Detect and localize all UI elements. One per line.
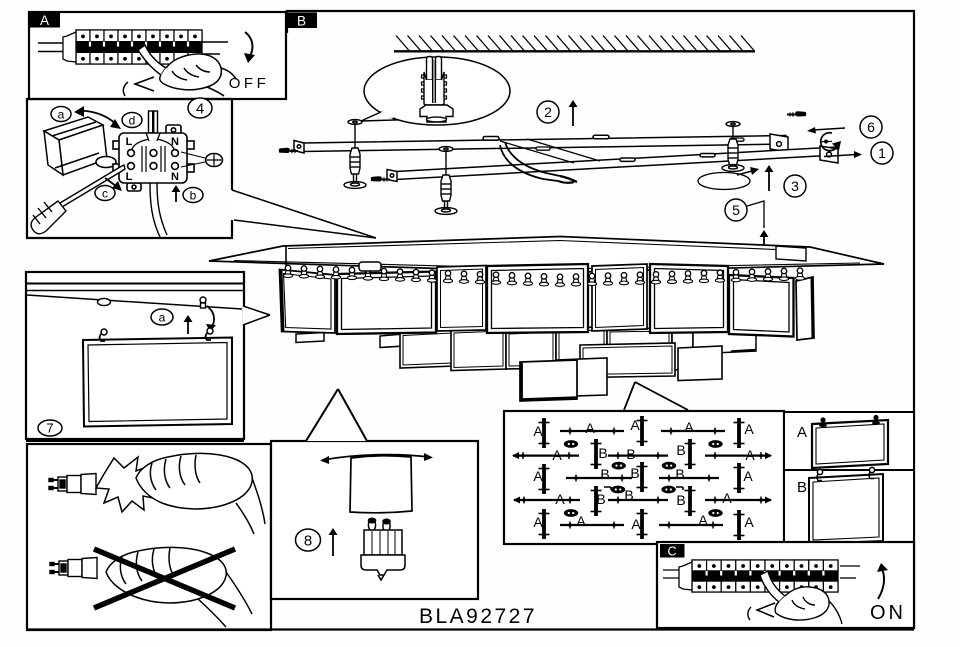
svg-text:B: B (596, 491, 605, 507)
svg-text:A: A (533, 514, 543, 530)
svg-text:5: 5 (732, 202, 740, 218)
svg-text:B: B (676, 492, 685, 508)
svg-text:A: A (631, 516, 641, 532)
svg-text:A: A (797, 424, 807, 441)
svg-text:A: A (743, 468, 753, 484)
svg-text:A: A (585, 420, 595, 436)
svg-text:a: a (58, 107, 65, 121)
svg-text:8: 8 (304, 532, 312, 549)
svg-text:OFF: OFF (229, 75, 270, 92)
svg-text:B: B (676, 442, 685, 458)
svg-text:a: a (159, 310, 166, 324)
svg-text:ON: ON (870, 602, 906, 624)
svg-text:N: N (171, 136, 179, 148)
svg-text:C: C (667, 545, 676, 559)
svg-text:4: 4 (196, 100, 204, 117)
svg-text:A: A (744, 514, 754, 530)
svg-text:A: A (40, 13, 49, 28)
svg-text:A: A (722, 490, 732, 506)
svg-text:A: A (744, 421, 754, 437)
svg-text:6: 6 (867, 119, 875, 135)
svg-text:A: A (698, 512, 708, 528)
svg-text:A: A (745, 447, 755, 463)
svg-text:A: A (555, 491, 565, 507)
svg-text:B: B (630, 465, 639, 481)
svg-text:B: B (297, 14, 306, 29)
svg-text:2: 2 (544, 104, 552, 120)
svg-text:BLA92727: BLA92727 (419, 605, 537, 628)
svg-text:B: B (675, 466, 684, 482)
svg-text:3: 3 (791, 178, 799, 194)
svg-text:B: B (624, 487, 633, 503)
svg-text:N: N (171, 171, 179, 183)
svg-text:d: d (129, 113, 136, 127)
svg-text:A: A (552, 447, 562, 463)
svg-text:B: B (797, 479, 807, 496)
svg-text:7: 7 (46, 421, 53, 436)
svg-text:A: A (576, 513, 586, 529)
svg-text:b: b (190, 188, 197, 202)
svg-text:A: A (533, 468, 543, 484)
svg-text:c: c (102, 186, 108, 200)
svg-text:L: L (126, 136, 133, 148)
svg-text:A: A (630, 417, 640, 433)
svg-text:B: B (600, 466, 609, 482)
svg-text:L: L (126, 171, 133, 183)
svg-text:A: A (533, 423, 543, 439)
svg-text:1: 1 (878, 145, 886, 161)
svg-text:B: B (598, 445, 607, 461)
svg-text:A: A (684, 419, 694, 435)
svg-text:B: B (626, 446, 635, 462)
